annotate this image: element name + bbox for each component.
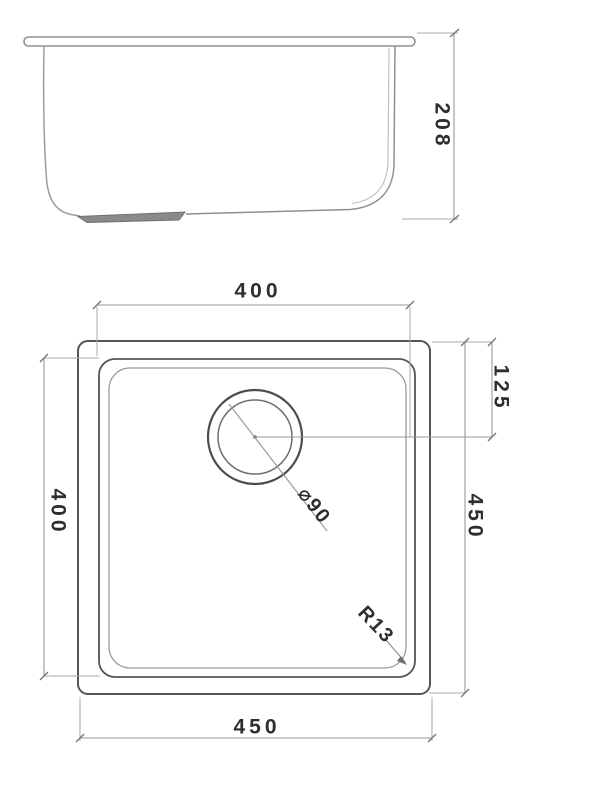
dim-label-bowl-width: 400 <box>234 281 281 302</box>
technical-drawing-canvas: 208 400 400 450 125 450 ⌀90 R13 <box>0 0 605 800</box>
dim-label-outer-depth: 450 <box>465 493 486 540</box>
elevation-rim-flange <box>24 37 415 46</box>
elevation-drain-pad <box>78 212 185 223</box>
dim-label-elevation-height: 208 <box>432 102 453 149</box>
corner-radius-leader <box>386 640 407 665</box>
dim-label-outer-width: 450 <box>233 717 280 738</box>
elevation-right-wall-inner <box>352 48 389 204</box>
elevation-left-wall <box>44 46 80 216</box>
elevation-right-wall-outer <box>186 46 395 214</box>
dim-label-bowl-depth: 400 <box>48 488 69 535</box>
dim-label-drain-offset: 125 <box>491 364 512 411</box>
sink-drawing <box>0 0 605 800</box>
plan-view <box>40 301 496 742</box>
bowl-width-dimension <box>93 301 414 437</box>
elevation-view <box>24 29 459 223</box>
